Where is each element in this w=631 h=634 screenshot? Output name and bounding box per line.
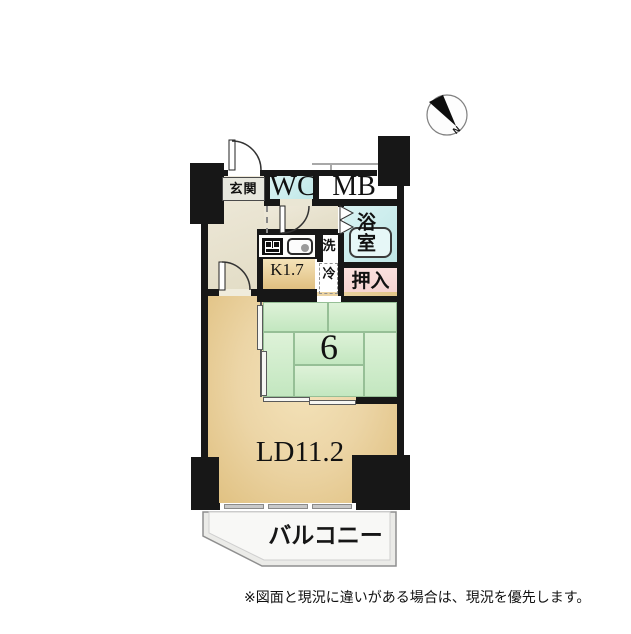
compass-icon: N — [424, 93, 472, 141]
wc-door-arc — [282, 206, 309, 233]
fridge-label: 冷 — [320, 266, 338, 282]
floor-plan: N 玄関 WC MB 浴室 洗 冷 K1.7 押入 6 LD11.2 バルコニー… — [0, 0, 631, 634]
genkan-label: 玄関 — [222, 177, 265, 201]
washer-label: 洗 — [320, 238, 338, 254]
tatami-size-label: 6 — [294, 327, 364, 367]
bath-label: 浴室 — [358, 207, 378, 259]
living-dining-label: LD11.2 — [227, 435, 373, 469]
ld-door-leaf — [219, 262, 225, 290]
kitchen-label: K1.7 — [258, 260, 316, 280]
mb-label: MB — [324, 173, 384, 201]
disclaimer-note: ※図面と現況に違いがある場合は、現況を優先します。 — [244, 587, 630, 607]
wc-door-leaf — [280, 206, 285, 233]
balcony-label: バルコニー — [258, 521, 393, 549]
ld-door-arc — [222, 262, 250, 290]
entrance-door-arc — [232, 141, 261, 170]
closet-label: 押入 — [344, 269, 397, 295]
wc-label: WC — [266, 171, 320, 201]
entrance-door-leaf — [229, 140, 235, 170]
